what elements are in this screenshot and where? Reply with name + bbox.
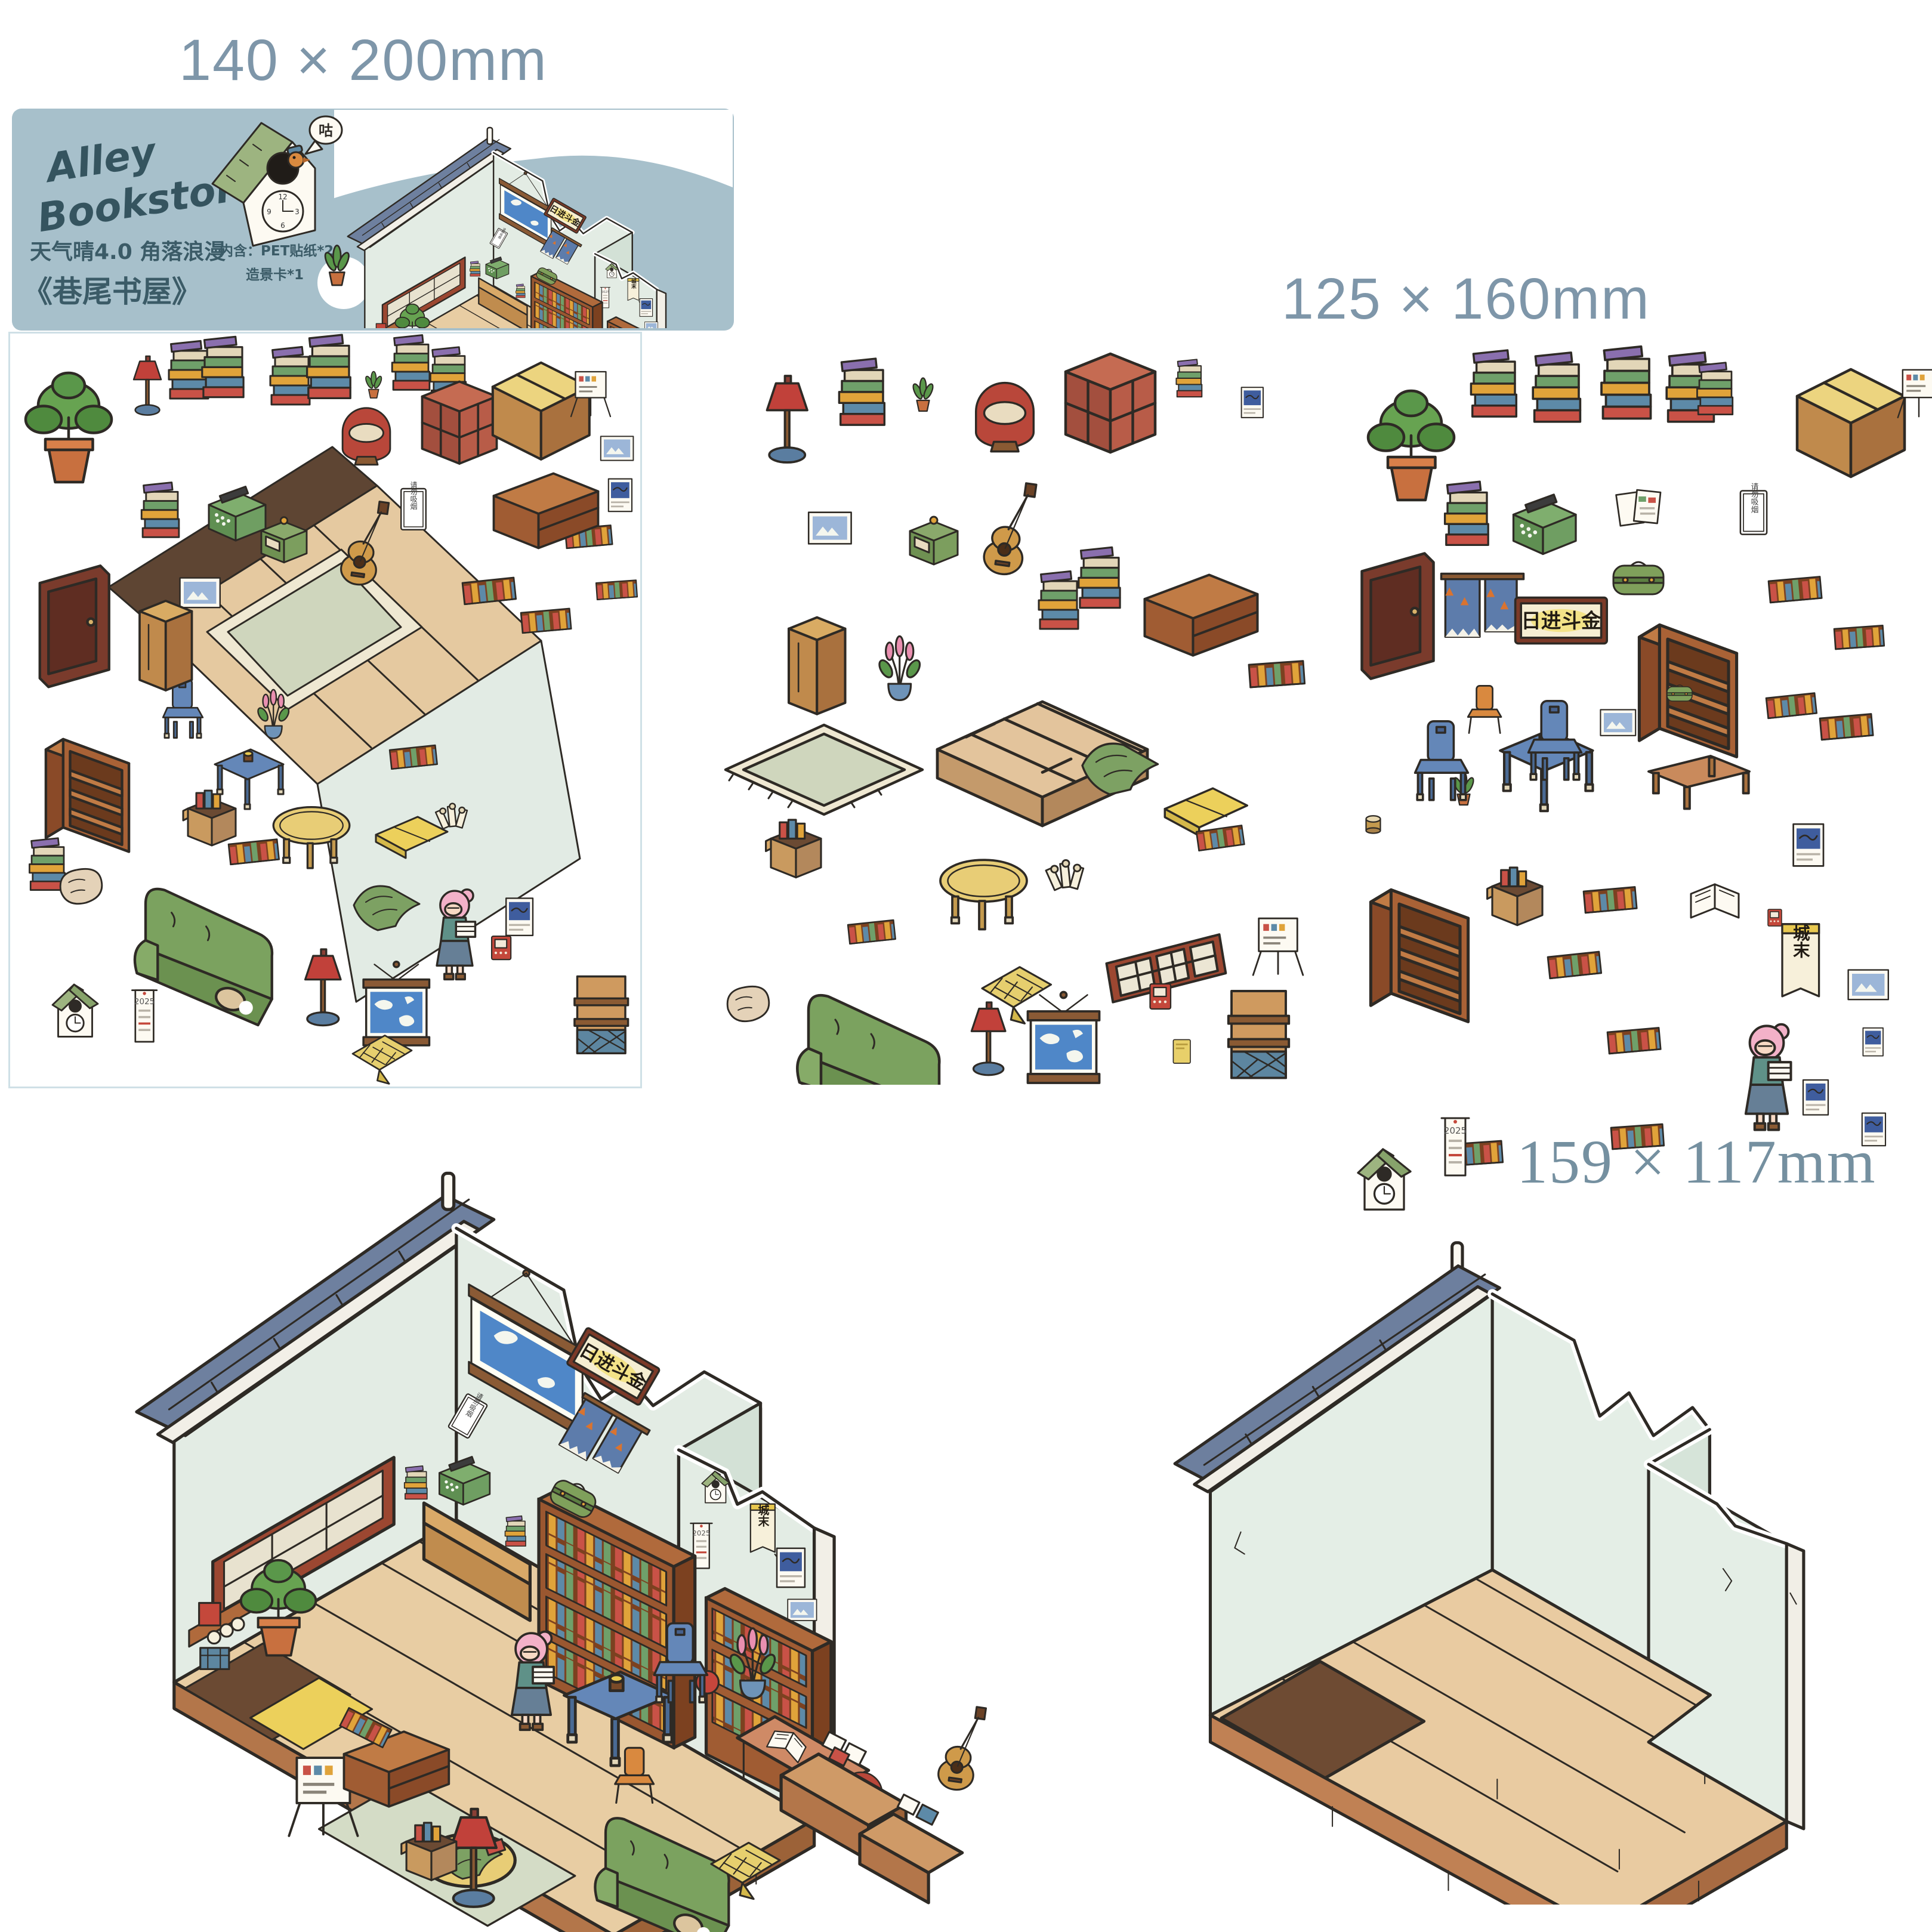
sticker-gramophone-box [910,517,958,564]
scene-card-art [1119,1202,1912,1905]
sticker-bookshelf [1371,890,1468,1021]
sticker-no-smoking-sign [1740,483,1767,535]
sticker-cuckoo-clock [53,984,98,1036]
sticker-low-table [1649,756,1749,808]
sticker-floor-lamp [767,376,808,462]
sticker-book-stack [202,337,243,397]
sticker-poster [1862,1113,1885,1146]
sticker-book-stack [839,359,884,425]
sticker-book-row [1611,1124,1664,1149]
clock-9: 9 [267,208,271,216]
sticker-cardboard-box [766,820,821,878]
sticker-oval-table [940,860,1027,929]
sticker-no-smoking-sign [401,481,426,530]
contents-line2: 造景卡*1 [246,267,304,283]
size-label-package: 140 × 200mm [179,31,548,89]
clock-6: 6 [280,221,285,230]
sticker-book-row [521,609,571,633]
sticker-magazine-rack [575,977,628,1054]
sticker-poster [506,898,533,935]
sticker-noren-curtain [1442,574,1524,637]
sticker-scroll-poster [1782,924,1819,996]
sticker-flower-sprout [365,372,383,398]
sticker-flower-vase [877,636,922,700]
sticker-poster [1794,824,1823,866]
sticker-door [1362,554,1434,679]
sticker-mini-radio [492,936,511,959]
sticker-calendar [1442,1118,1469,1175]
sticker-cup [1366,816,1381,833]
sticker-book-row [1769,576,1822,602]
sticker-door [40,566,109,687]
sticker-blue-chair [1529,701,1582,780]
sticker-book-row [462,578,516,604]
sticker-book-row [1584,887,1637,912]
sticker-pillow [727,986,769,1021]
sticker-open-book [1691,884,1739,918]
sticker-poster [1863,1028,1883,1056]
sticker-bookshelf [46,739,129,852]
sticker-potted-plant [1368,391,1454,500]
sticker-book-stack [1445,482,1489,545]
sticker-book-row [1766,693,1817,718]
sticker-cardboard-box [1487,868,1542,925]
sticker-book-stack [270,347,310,405]
sticker-typewriter [1514,495,1576,554]
sticker-book-stack [1697,363,1732,415]
sticker-easel-sign [1253,918,1303,975]
sticker-sheet-2 [694,335,1314,1085]
package: Alley Bookstore 12 3 6 9 咕 天气晴4.0 角落浪漫 《… [12,105,735,333]
sticker-pillow [60,869,102,903]
sticker-book-row [848,920,896,944]
sticker-pencil-case [1667,685,1692,701]
sticker-picture [808,513,851,544]
size-label-sheets: 125 × 160mm [1282,270,1650,328]
speech-bubble-text: 咕 [319,122,333,139]
sticker-yellow-card [1173,1039,1190,1063]
sticker-sheet-3 [1332,335,1932,1236]
sticker-book-stack [1533,353,1580,422]
sticker-floor-lamp [971,1002,1005,1075]
sticker-book-stack [141,483,179,538]
sticker-paper-rolls [1046,860,1084,890]
sticker-blue-chair [1415,721,1468,800]
sticker-book-stack [392,335,430,390]
sticker-wardrobe-column [789,618,845,714]
sticker-menu-cards [1616,490,1661,526]
sticker-cube-shelf [422,382,497,464]
clock-12: 12 [278,193,287,201]
sticker-picture [180,578,220,608]
sticker-picture [1600,709,1635,735]
sticker-guitar [982,479,1036,578]
sticker-cuckoo-clock [1358,1149,1411,1209]
sticker-sofa [797,995,939,1085]
sticker-book-stack [1601,347,1651,419]
sticker-orange-chair [1468,686,1501,733]
sticker-red-card [1768,909,1782,926]
sticker-plaque [1516,598,1607,644]
sticker-book-stack [1039,571,1078,629]
series-text: 天气晴4.0 角落浪漫 [30,240,226,264]
sticker-book-row [1249,661,1305,687]
sticker-floor-lamp [134,356,161,415]
sticker-book-stack [1079,547,1120,607]
sticker-picture [1848,970,1888,1000]
sticker-poster [1803,1080,1828,1115]
sticker-book-row [596,580,637,600]
sticker-l-counter [1797,369,1905,477]
sticker-flower-sprout [912,378,935,412]
sticker-book-row [1834,625,1884,649]
sticker-low-cabinet [1145,575,1258,656]
sticker-mini-radio [1150,984,1171,1009]
sticker-book-row [1548,952,1601,979]
sticker-wardrobe-column [140,601,192,690]
sticker-red-armchair [976,383,1034,452]
sticker-map-scroll [1028,992,1100,1084]
clock-3: 3 [295,208,300,216]
sticker-poster [609,479,632,512]
sticker-red-armchair [342,408,390,465]
sticker-cube-shelf [1066,354,1155,452]
sticker-picture [601,436,634,460]
sticker-blue-table [215,749,283,809]
sticker-poster [1242,387,1263,418]
sticker-sheet-1 [8,332,642,1088]
sticker-book-row [1196,825,1245,850]
assembled-room-art [57,1117,993,1932]
sticker-rug [726,725,922,814]
sticker-book-stack [1471,350,1516,416]
product-title: 《巷尾书屋》 [23,274,202,309]
sticker-book-row [229,839,279,864]
sticker-magazine-rack [1229,991,1289,1078]
contents-line1: 内含：PET贴纸*2 [220,243,334,259]
sticker-potted-plant [26,373,112,482]
sticker-book-row [1607,1027,1661,1053]
sticker-green-suitcase [1613,562,1664,594]
sticker-book-row [390,745,437,769]
sticker-book-stack [29,838,64,890]
sticker-shop-girl [437,890,475,980]
sticker-cardboard-box [183,791,236,845]
sticker-shop-girl [1746,1024,1791,1130]
sticker-book-stack [1176,359,1202,397]
sticker-floor-lamp [305,949,341,1026]
sticker-calendar [132,990,156,1042]
sticker-sofa [135,889,272,1025]
sticker-book-stack [307,335,351,398]
sticker-book-row [1820,714,1873,739]
